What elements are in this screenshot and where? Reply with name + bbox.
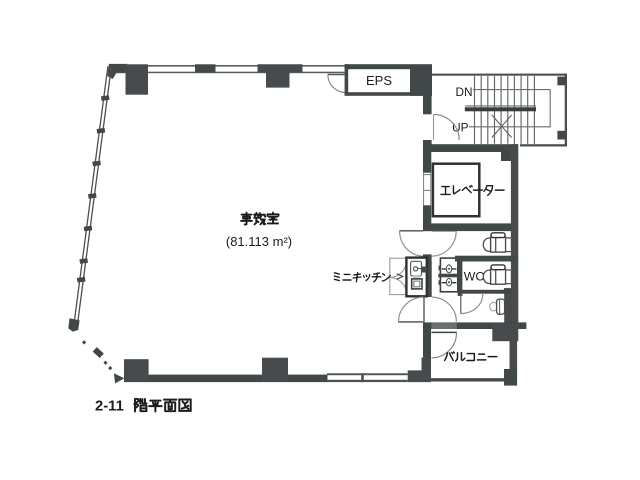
svg-text:UP: UP: [452, 120, 469, 134]
svg-text:(81.113 m²): (81.113 m²): [226, 234, 292, 249]
svg-text:DN: DN: [455, 85, 472, 99]
svg-text:WC: WC: [464, 269, 485, 283]
svg-text:2-11: 2-11: [95, 399, 124, 415]
svg-text:EPS: EPS: [366, 73, 392, 88]
